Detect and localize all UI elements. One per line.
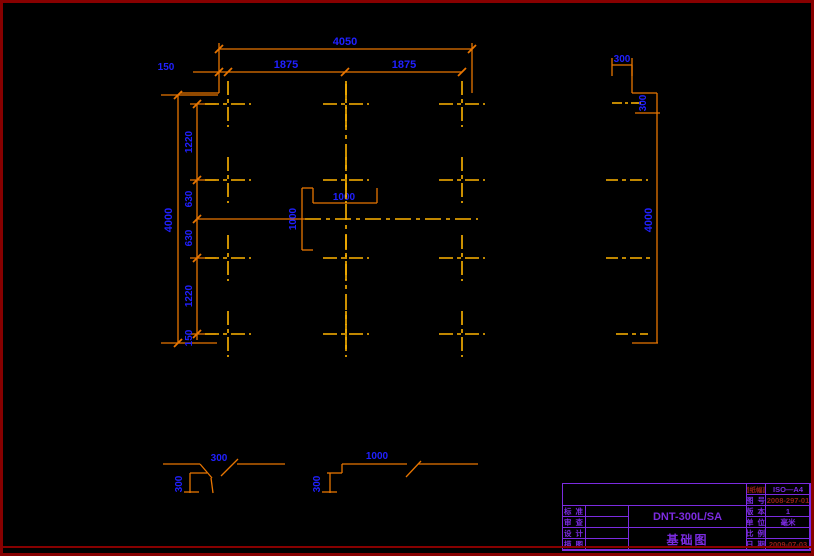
bolt-centermark (205, 311, 251, 357)
dim-left-total: 4000 (163, 208, 175, 232)
bolt-centermark (439, 81, 485, 127)
bolt-centermark (439, 157, 485, 203)
dim-top-1875-left: 1875 (274, 59, 298, 71)
dim-left-630-bottom: 630 (184, 229, 195, 246)
dim-top-150: 150 (158, 62, 175, 73)
titleblock-sign-cell (585, 538, 629, 551)
titleblock-model: DNT-300L/SA (628, 505, 747, 528)
titleblock-date-label: 日 期 (746, 538, 766, 551)
titleblock-role-draft: 描 图 (562, 538, 586, 551)
bolt-centermark (205, 81, 251, 127)
dim-detail-b-width: 1000 (366, 451, 389, 462)
titleblock-company-cell (562, 483, 747, 506)
dim-section-step: 300 (638, 94, 649, 111)
bolt-centermark (205, 235, 251, 281)
dim-center-h: 1000 (333, 192, 356, 203)
dim-top-total: 4050 (333, 36, 357, 48)
dim-detail-a-width: 300 (211, 453, 228, 464)
titleblock-date-value: 2009-07-03 (765, 538, 811, 551)
title-block: 标 准 审 查 设 计 描 图 DNT-300L/SA 基础图 图纸幅面 ISO… (562, 483, 810, 550)
dim-section-height: 4000 (643, 208, 655, 232)
frame-bottom-line (0, 546, 814, 548)
dim-left-1220-bottom: 1220 (184, 284, 195, 307)
section-view: 300 300 4000 (606, 54, 660, 343)
dim-left-1220-top: 1220 (184, 130, 195, 153)
dim-top-1875-right: 1875 (392, 59, 416, 71)
dim-left-630-top: 630 (184, 190, 195, 207)
plan-view: 4050 150 1875 1875 4000 (158, 36, 485, 357)
cad-drawing-screen: 4050 150 1875 1875 4000 (0, 0, 814, 556)
dim-center-v: 1000 (288, 207, 299, 230)
drawing-canvas: 4050 150 1875 1875 4000 (0, 0, 814, 556)
bolt-centermark (439, 311, 485, 357)
bolt-centermark (323, 81, 369, 127)
bolt-centermark (205, 157, 251, 203)
dim-detail-b-depth: 300 (312, 475, 323, 492)
detail-edge-300: 300 300 (163, 453, 285, 493)
dim-left-150: 150 (184, 329, 195, 346)
dim-section-top: 300 (614, 54, 631, 65)
detail-edge-1000: 1000 300 (312, 451, 478, 493)
dim-detail-a-depth: 300 (174, 475, 185, 492)
bolt-centermark (439, 235, 485, 281)
